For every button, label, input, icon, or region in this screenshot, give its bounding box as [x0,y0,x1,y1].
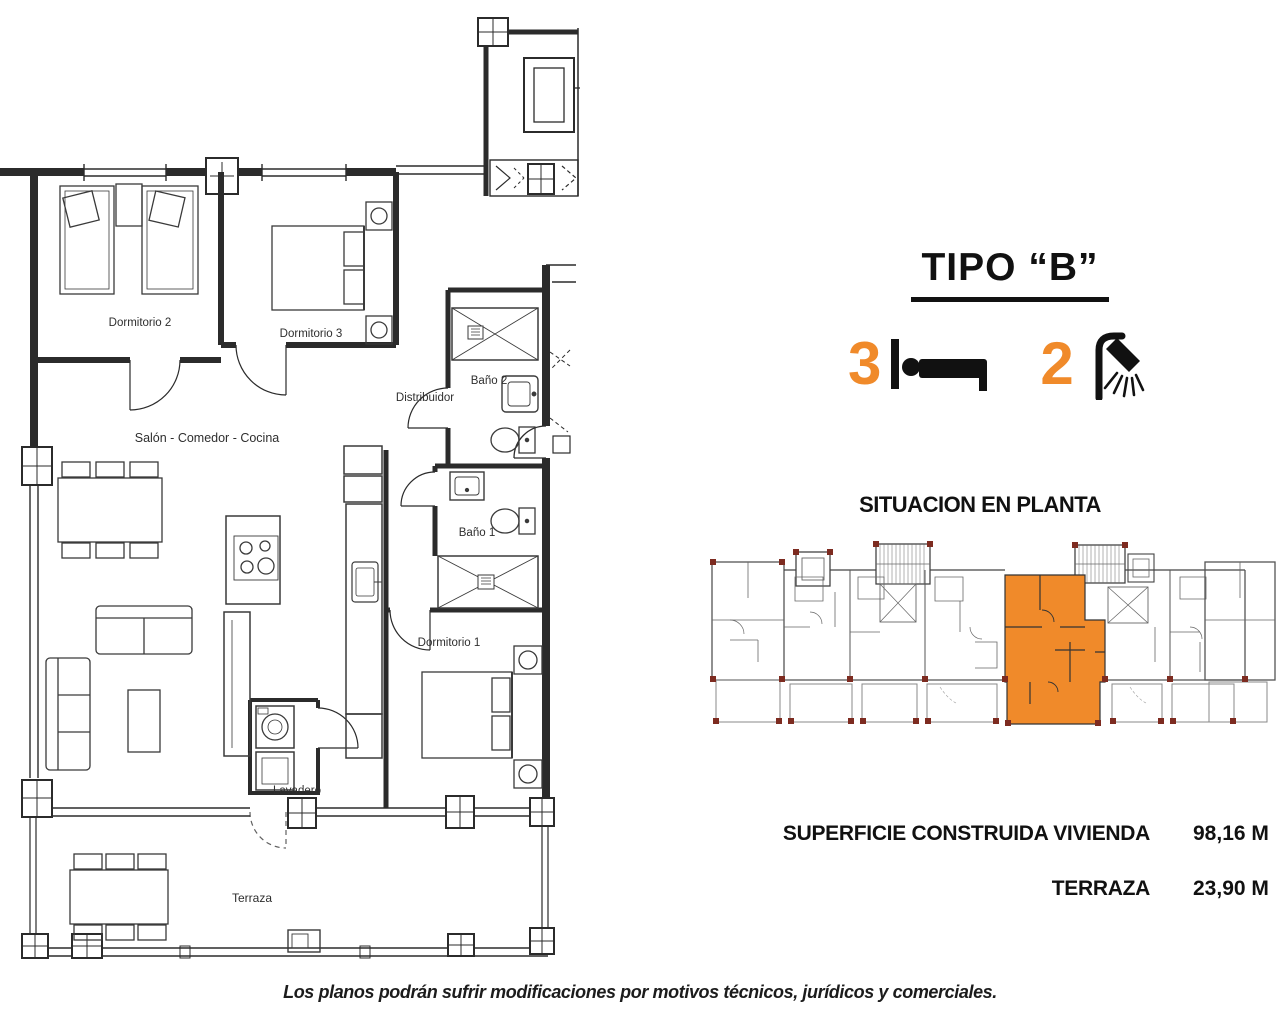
area-label-vivienda: SUPERFICIE CONSTRUIDA VIVIENDA [520,822,1150,846]
patio-cross [880,584,916,622]
highlighted-unit [1005,575,1105,724]
sofa [46,606,192,770]
pillar [22,447,52,485]
area-label-terraza: TERRAZA [520,877,1150,901]
room-label-terraza: Terraza [232,891,272,905]
terrace-table [70,854,168,940]
washing-machine [256,706,294,790]
kitchen-counters [224,446,382,758]
room-label-bano-2: Baño 2 [471,375,507,387]
room-label-salon: Salón - Comedor - Cocina [135,431,280,445]
shower-icon [1090,328,1152,400]
dining-table [58,462,162,558]
dormitorio-2-furniture [60,184,198,294]
pillar [446,796,474,828]
situacion-plan [700,532,1280,767]
unit-type-header: TIPO “B” [850,246,1170,302]
pillar [528,164,554,194]
disclaimer-text: Los planos podrán sufrir modificaciones … [0,982,1280,1003]
pillar [72,934,102,958]
area-value-terraza: 23,90 M [1193,877,1280,901]
pillar [22,934,48,958]
features-row: 3 2 [848,324,1188,404]
bathroom-count: 2 [1040,334,1073,394]
pillars [22,18,554,958]
page-title: TIPO “B” [911,246,1108,302]
area-value-vivienda: 98,16 M [1193,822,1280,846]
room-label-dormitorio-2: Dormitorio 2 [109,317,172,329]
pillar [530,928,554,954]
room-label-dormitorio-3: Dormitorio 3 [280,328,343,340]
room-label-distribuidor: Distribuidor [396,392,454,404]
pillar-markers [710,541,1248,726]
bed-icon [889,335,994,393]
pillar [288,798,316,828]
room-label-bano-1: Baño 1 [459,527,495,539]
room-label-dormitorio-1: Dormitorio 1 [418,637,481,649]
bedroom-count: 3 [848,334,881,394]
pillar [448,934,474,956]
bano-1-fixtures [438,472,538,608]
situacion-title: SITUACION EN PLANTA [700,492,1260,518]
pillar [22,780,52,817]
pillar [478,18,508,46]
dormitorio-3-furniture [272,202,392,344]
room-label-lavadero: Lavadero [273,785,321,797]
dormitorio-1-furniture [422,646,542,788]
patio-cross [1108,587,1148,623]
